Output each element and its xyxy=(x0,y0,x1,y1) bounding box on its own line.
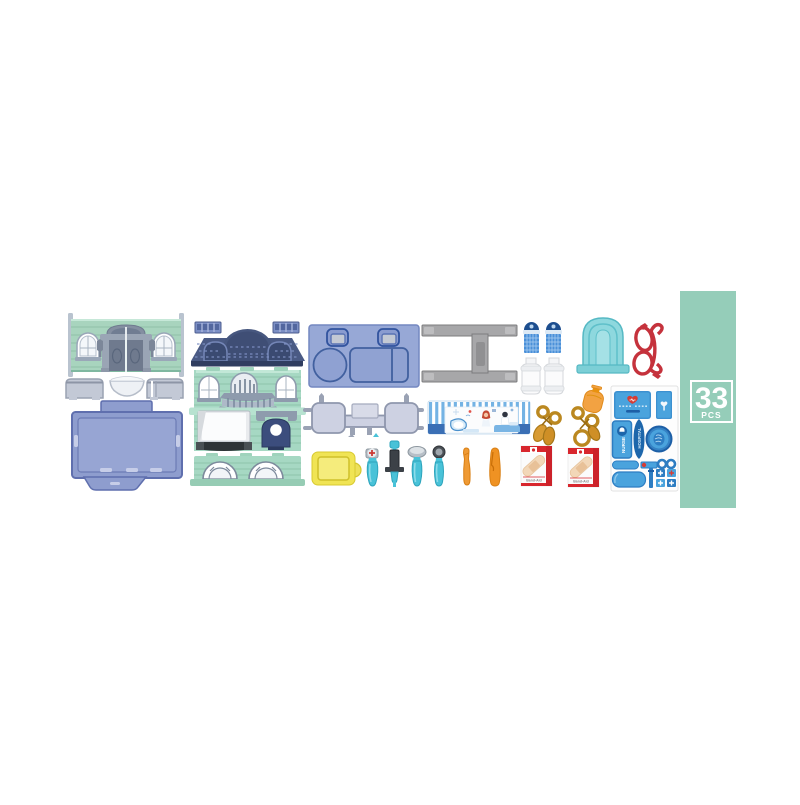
svg-text:HOSPITAL: HOSPITAL xyxy=(637,427,642,448)
svg-text:NURSE: NURSE xyxy=(621,437,626,453)
svg-text:Band-Aid: Band-Aid xyxy=(526,479,542,483)
svg-text:PCS: PCS xyxy=(701,410,721,420)
svg-text:Band-Aid: Band-Aid xyxy=(573,480,589,484)
